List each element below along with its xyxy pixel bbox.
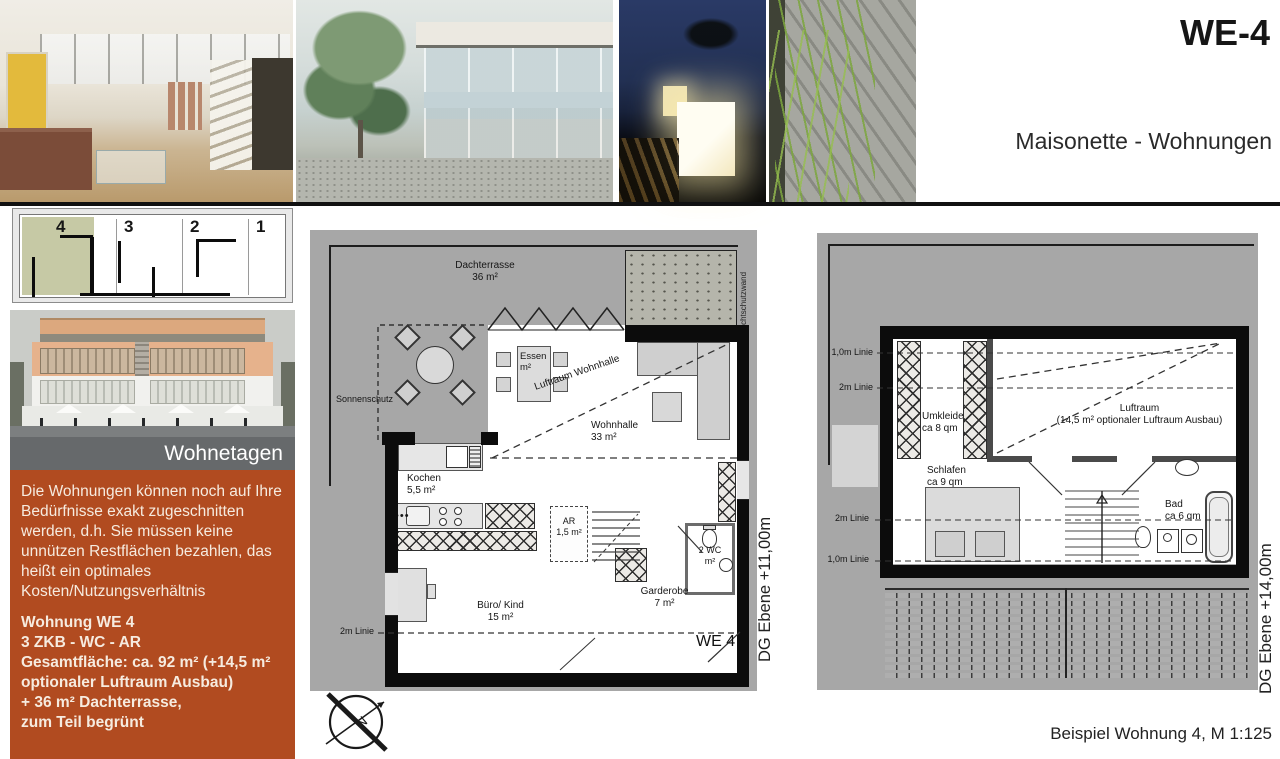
deck-planks xyxy=(619,138,679,202)
wc-label: 2 WCm² xyxy=(687,545,733,566)
linie-2m-top-label: 2m Linie xyxy=(824,382,873,393)
umkleide-label: Umkleideca 8 qm xyxy=(922,411,964,435)
level-label-upper: DG Ebene +14,00m xyxy=(1256,446,1276,694)
overview-wall-h xyxy=(80,293,230,296)
info-paragraph: Die Wohnungen können noch auf Ihre Bedür… xyxy=(21,482,284,602)
level-label-lower: DG Ebene +11,00m xyxy=(756,482,775,662)
elevation-attic xyxy=(40,318,265,334)
unit-terrace: + 36 m² Dachterrasse, xyxy=(21,693,284,713)
floorplan-upper-level: 1,0m Linie 2m Linie Umkleideca 8 qm Schl… xyxy=(817,233,1258,690)
wall-dark xyxy=(252,58,293,170)
linie-1m-bottom-label: 1,0m Linie xyxy=(817,554,869,565)
photo-glass-house xyxy=(296,0,613,202)
glow-cube-large xyxy=(677,102,735,176)
overview-divider-2 xyxy=(182,219,183,295)
photo-grass-deck xyxy=(769,0,916,202)
essen-label: Essenm² xyxy=(520,351,546,373)
overview-floorplan: 4 3 2 1 xyxy=(12,208,293,303)
artwork-frames xyxy=(168,82,202,130)
info-box: Die Wohnungen können noch auf Ihre Bedür… xyxy=(10,470,295,759)
tree-silhouette xyxy=(671,8,751,66)
grass-blades-b xyxy=(769,30,849,202)
roof-slab xyxy=(416,22,613,48)
overview-unit-2: 2 xyxy=(190,217,199,237)
floorplan-lower-level: Sichtschutzwand ••• xyxy=(310,230,757,691)
unit-tag-label: WE 4 xyxy=(696,633,735,651)
umbrella-3 xyxy=(168,404,194,413)
photo-night-terrace xyxy=(619,0,766,202)
header-rule xyxy=(0,202,1280,206)
overview-canvas: 4 3 2 1 xyxy=(19,214,286,298)
elevation-tree-right xyxy=(281,362,295,432)
umbrella-1 xyxy=(56,404,82,413)
schlafen-label: Schlafenca 9 qm xyxy=(927,465,966,489)
sonnenschutz-label: Sonnenschutz xyxy=(336,394,393,405)
elevation-window-b xyxy=(150,348,245,374)
umbrella-4 xyxy=(224,404,250,413)
elevation-foreground xyxy=(10,426,295,437)
overview-wall-c xyxy=(32,257,35,297)
compass-icon: N xyxy=(318,686,394,758)
gravel-ground xyxy=(296,158,613,202)
garderobe-label: Garderobe7 m² xyxy=(622,586,707,610)
wohnhalle-label: Wohnhalle33 m² xyxy=(591,420,638,444)
overview-divider-1 xyxy=(116,219,117,295)
unit-green: zum Teil begrünt xyxy=(21,713,284,733)
section-band-label: Wohnetagen xyxy=(164,437,283,470)
overview-unit-4: 4 xyxy=(56,217,65,237)
overview-wall-d xyxy=(118,241,121,283)
glass-table xyxy=(96,150,166,184)
overview-unit-3: 3 xyxy=(124,217,133,237)
ar-label: AR1,5 m² xyxy=(551,516,587,537)
overview-divider-3 xyxy=(248,219,249,295)
plan-upper-linework xyxy=(817,233,1258,690)
elevation-glassband xyxy=(40,334,265,342)
linie-1m-top-label: 1,0m Linie xyxy=(821,347,873,358)
photo-living-room xyxy=(0,0,293,202)
unit-title: Wohnung WE 4 xyxy=(21,613,284,633)
page-code: WE-4 xyxy=(940,12,1270,54)
overview-wall-g xyxy=(196,239,236,242)
section-band: Wohnetagen xyxy=(10,437,295,470)
footer-caption: Beispiel Wohnung 4, M 1:125 xyxy=(1000,724,1272,744)
people-silhouettes xyxy=(40,418,265,426)
sofa-brown xyxy=(0,128,92,190)
water-horizon xyxy=(424,92,613,108)
kochen-label: Kochen5,5 m² xyxy=(407,473,441,497)
overview-wall-f xyxy=(196,239,199,277)
buero-label: Büro/ Kind15 m² xyxy=(458,600,543,624)
elevation-window-a xyxy=(40,348,135,374)
overview-wall-a xyxy=(90,237,94,295)
unit-rooms: 3 ZKB - WC - AR xyxy=(21,633,284,653)
brochure-page: WE-4 Maisonette - Wohnungen 4 3 2 1 xyxy=(0,0,1280,759)
dachterrasse-label: Dachterrasse36 m² xyxy=(425,260,545,284)
umbrella-2 xyxy=(110,404,136,413)
elevation-window-c xyxy=(40,380,135,404)
unit-area: Gesamtfläche: ca. 92 m² (+14,5 m² option… xyxy=(21,653,284,693)
elevation-window-d xyxy=(150,380,245,404)
page-subtitle: Maisonette - Wohnungen xyxy=(900,128,1272,155)
compass-north-label: N xyxy=(352,713,370,732)
linie-2m-bottom-label: 2m Linie xyxy=(820,513,869,524)
linie-2m-label-lower: 2m Linie xyxy=(328,626,374,637)
overview-unit-1: 1 xyxy=(256,217,265,237)
tree-canopy xyxy=(300,6,432,146)
bad-label: Badca 6 qm xyxy=(1165,499,1201,523)
elevation-rendering xyxy=(10,310,295,437)
luftraum-label: Luftraum(14,5 m² optionaler Luftraum Aus… xyxy=(1047,403,1232,427)
